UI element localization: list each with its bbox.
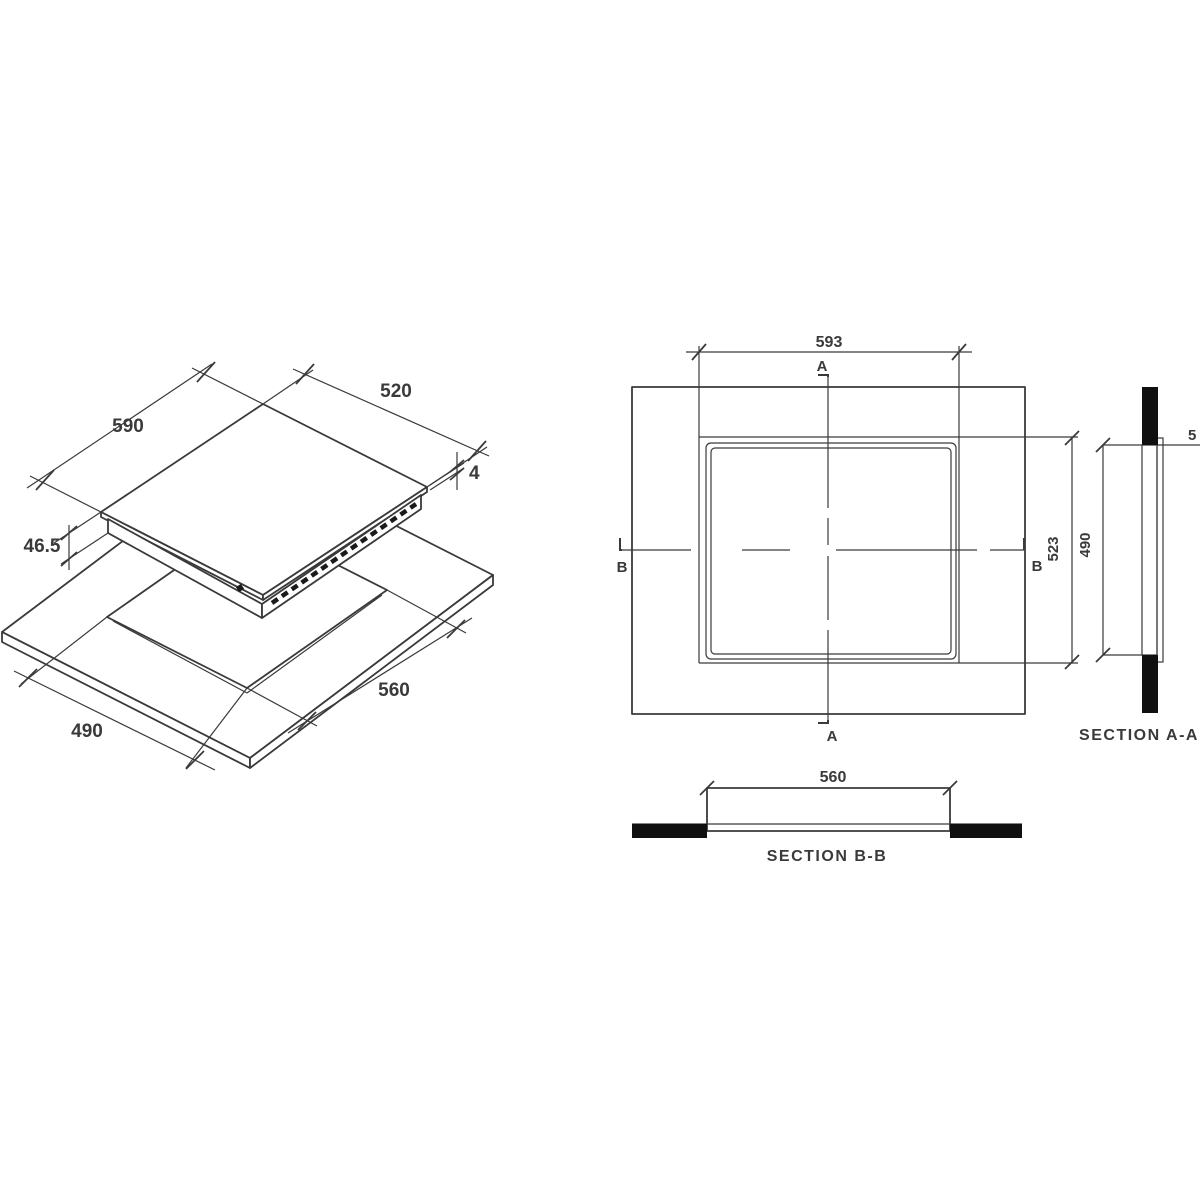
dim-label-590: 590 [112,416,144,437]
iso-view: 490 560 590 [2,362,493,770]
dim-label-520: 520 [380,381,412,402]
plan-view: 593 523 A A B B [617,334,1079,745]
section-bb-title: SECTION B-B [767,848,888,865]
technical-drawing-sheet: 490 560 590 [0,0,1200,1200]
section-bb-view: 560 SECTION B-B [632,769,1022,865]
dim-label-560: 560 [378,680,410,701]
section-a-label-bottom: A [827,728,838,745]
aa-dim-clipped: 5 [1188,427,1196,444]
dim-label-593: 593 [816,334,843,351]
bb-worktop-right-bar [950,824,1022,838]
dim-label-523: 523 [1045,536,1062,561]
bb-dim-560: 560 [820,769,847,786]
bb-worktop-left-bar [632,824,707,838]
aa-glass [1157,438,1163,662]
aa-worktop-bottom-bar [1142,655,1158,713]
aa-dim-490: 490 [1077,532,1094,557]
aa-worktop-top-bar [1142,387,1158,445]
dim-label-490: 490 [71,721,103,742]
section-aa-title: SECTION A-A [1079,727,1199,744]
dim-glass-4: 4 [430,452,480,490]
dim-label-4: 4 [469,463,480,484]
section-a-label-top: A [817,358,828,375]
section-b-label-right: B [1032,558,1043,575]
section-aa-view: 490 5 SECTION A-A [1077,387,1200,744]
dim-label-46-5: 46.5 [24,536,61,557]
dim-plan-523: 523 [1045,431,1079,669]
drawing-canvas: 490 560 590 [0,0,1200,1200]
section-b-label-left: B [617,559,628,576]
